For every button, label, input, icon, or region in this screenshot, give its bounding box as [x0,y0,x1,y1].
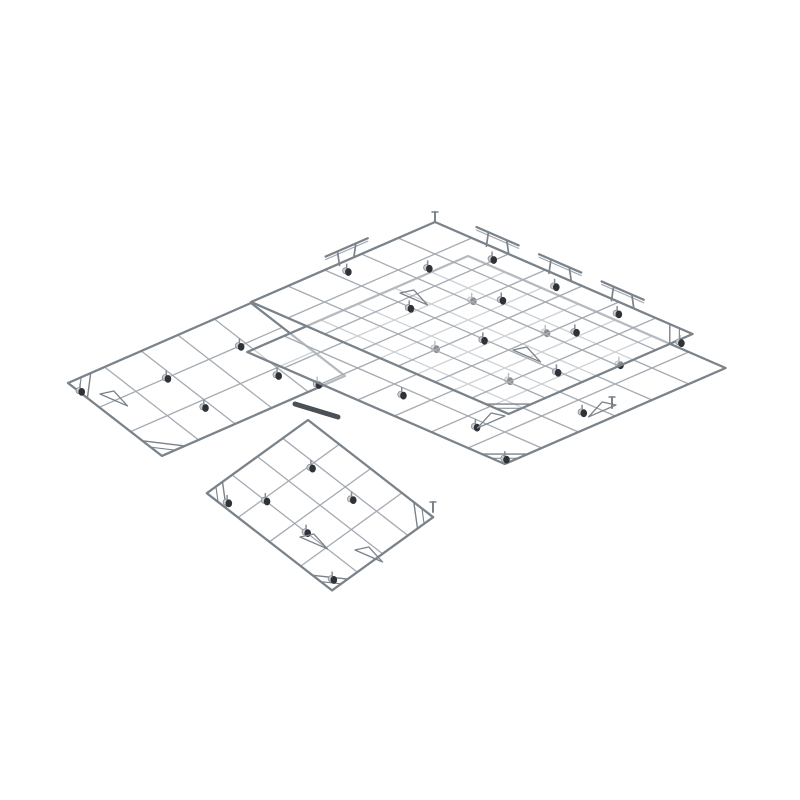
corner-post [432,212,438,222]
product-image-stage [0,0,800,800]
grid-panel-bottom [207,420,433,590]
coupling-sleeve [295,404,338,417]
corner-post [430,502,436,512]
product-render-svg [0,0,800,800]
